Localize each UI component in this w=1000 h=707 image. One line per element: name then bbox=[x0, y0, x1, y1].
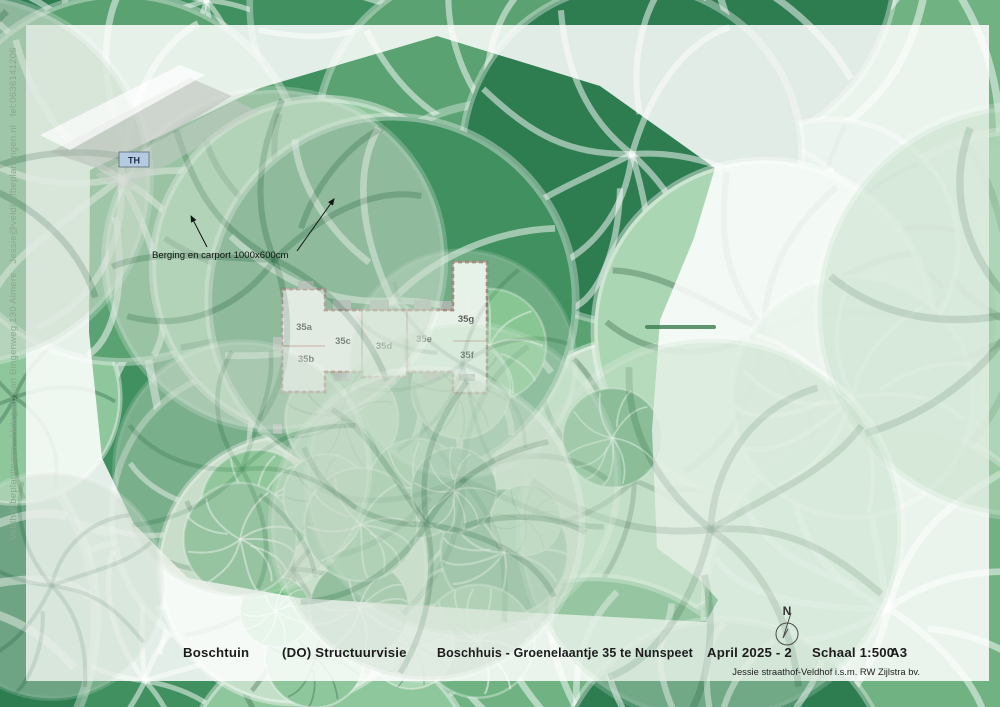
project-title: Boschtuin bbox=[183, 645, 249, 660]
carport-annotation-text: Berging en carport 1000x600cm bbox=[152, 250, 289, 261]
sidebar-contact-text: Veldhof beplantingen - Hidegard van Bing… bbox=[8, 47, 19, 540]
subject-title: Boschhuis - Groenelaantje 35 te Nunspeet bbox=[437, 645, 693, 660]
hedge-east bbox=[645, 325, 716, 329]
credit-line: Jessie straathof-Veldhof i.s.m. RW Zijls… bbox=[732, 666, 920, 677]
date-label: April 2025 - 2 bbox=[707, 645, 792, 660]
paper-size-label: A3 bbox=[890, 645, 907, 660]
th-marker: TH bbox=[119, 152, 149, 167]
phase-title: (DO) Structuurvisie bbox=[282, 645, 407, 660]
th-label: TH bbox=[128, 156, 140, 166]
site-plan: 35a35b35c35d35e35f35g TH Berging en carp… bbox=[0, 0, 1000, 707]
scale-label: Schaal 1:500 bbox=[812, 645, 894, 660]
